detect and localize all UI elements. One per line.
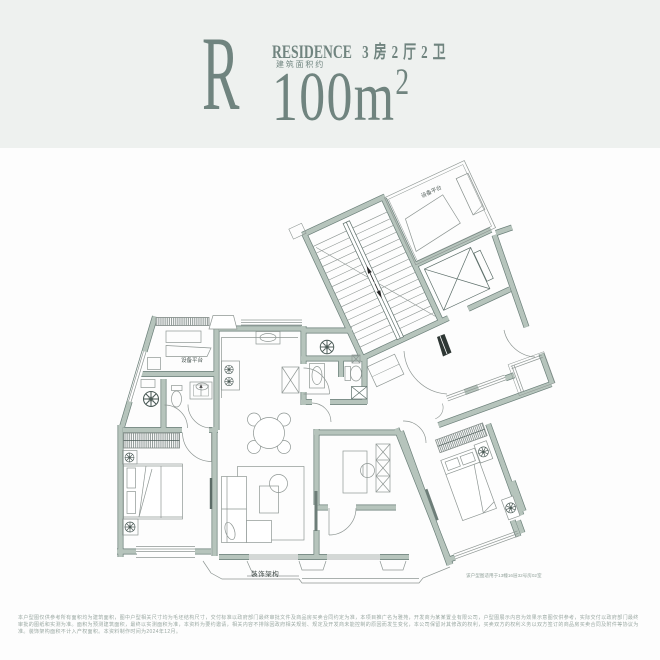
svg-text:该户型图适用于13幢16层32号房02室: 该户型图适用于13幢16层32号房02室 (466, 572, 542, 579)
svg-text:设备平台: 设备平台 (181, 356, 204, 364)
svg-text:装饰架构: 装饰架构 (251, 569, 279, 578)
